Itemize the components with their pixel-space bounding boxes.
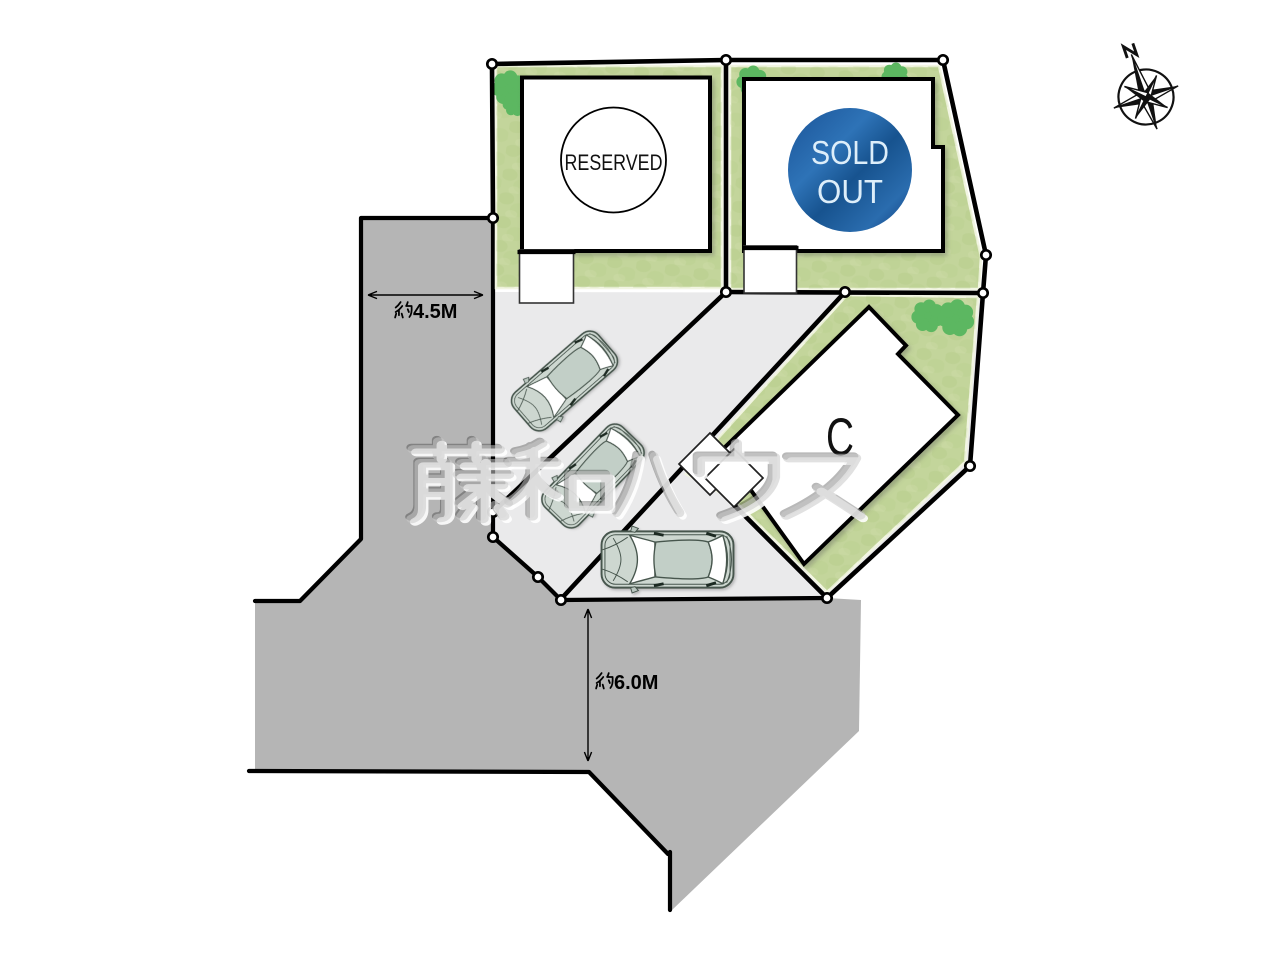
svg-text:SOLD: SOLD: [811, 134, 889, 171]
svg-text:6.0M: 6.0M: [614, 672, 658, 694]
svg-text:OUT: OUT: [817, 173, 883, 210]
svg-text:4.5M: 4.5M: [413, 301, 457, 323]
svg-text:RESERVED: RESERVED: [565, 150, 663, 175]
